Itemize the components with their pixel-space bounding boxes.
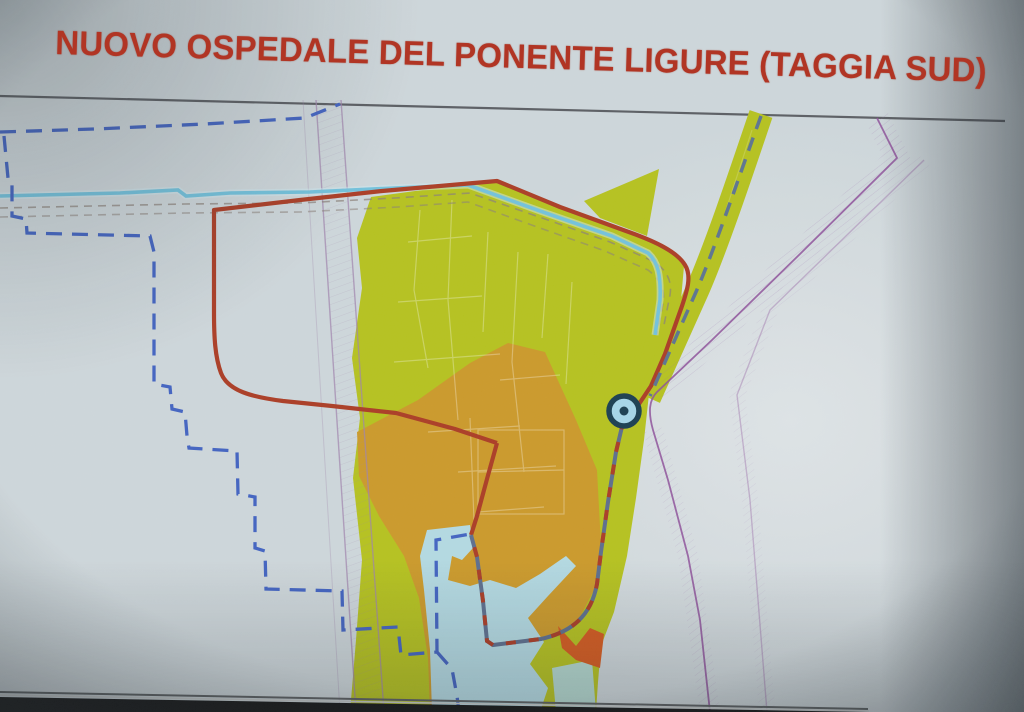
projected-slide-photo: NUOVO OSPEDALE DEL PONENTE LIGURE (TAGGI… (0, 0, 1024, 712)
map-canvas (0, 0, 1024, 712)
photo-grain (0, 0, 1024, 712)
